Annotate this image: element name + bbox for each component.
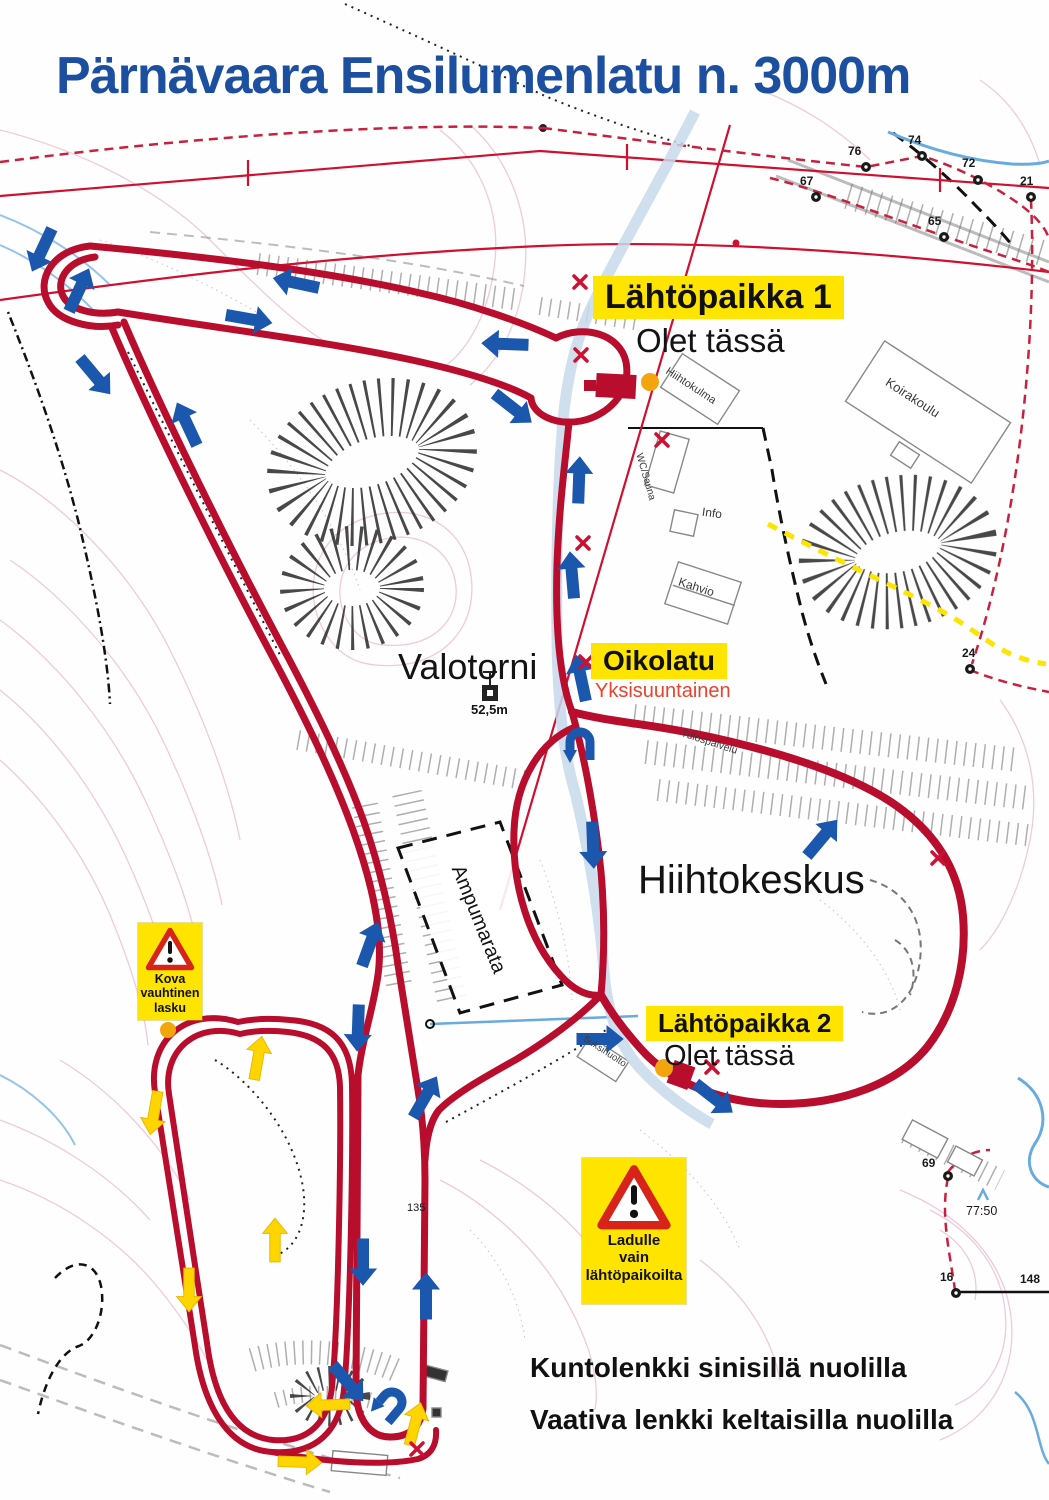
marker-148: 148 <box>1020 1272 1040 1286</box>
tower-height-label: 52,5m <box>471 702 508 717</box>
blue-uturn-arrow-icon <box>365 1383 406 1424</box>
blue-arrow-icon <box>565 457 593 504</box>
marker-67: 67 <box>800 174 813 188</box>
yellow-arrow-icon <box>242 1034 274 1081</box>
oikolatu-label: Oikolatu <box>591 643 727 679</box>
trail-map-page: Pärnävaara Ensilumenlatu n. 3000m Lähtöp… <box>0 0 1049 1500</box>
elevation-135-label: 135 <box>407 1202 425 1214</box>
start1-label: Lähtöpaikka 1 <box>593 276 844 319</box>
trail-map-graphics <box>0 0 1049 1500</box>
warning-downhill-line2: vauhtinen <box>140 986 199 1000</box>
legend-demanding-loop: Vaativa lenkki keltaisilla nuolilla <box>530 1404 953 1436</box>
building-small-1 <box>902 1120 948 1158</box>
start2-you-are-here: Olet tässä <box>664 1040 795 1073</box>
valotorni-label: Valotorni <box>398 646 537 688</box>
spot-height-chevron <box>978 1190 988 1200</box>
start2-label: Lähtöpaikka 2 <box>646 1006 843 1041</box>
blue-arrow-icon <box>797 812 846 864</box>
building-dark-2 <box>432 1408 441 1417</box>
power-lines <box>0 125 1049 910</box>
blue-arrow-icon <box>350 918 390 970</box>
marker-21: 21 <box>1020 174 1033 188</box>
marker-24: 24 <box>962 646 975 660</box>
yellow-arrow-icon <box>263 1218 288 1262</box>
blue-arrow-icon <box>413 1273 439 1319</box>
ski-slope-outlines <box>862 880 921 1014</box>
warning-access-line1: Ladulle <box>586 1232 683 1249</box>
marker-76: 76 <box>848 144 861 158</box>
blue-arrow-icon <box>70 350 119 402</box>
warning-sign-access: Ladulle vain lähtöpaikoilta <box>582 1158 686 1304</box>
start1-you-are-here: Olet tässä <box>636 322 785 360</box>
start-gate-1-tab <box>584 380 596 391</box>
warning-access-line3: lähtöpaikoilta <box>586 1267 683 1284</box>
warning-triangle-icon <box>596 1164 672 1232</box>
marker-72: 72 <box>962 156 975 170</box>
marker-16: 16 <box>940 1270 953 1284</box>
warning-access-line2: vain <box>586 1249 683 1266</box>
info-building-label: Info <box>701 505 723 522</box>
legend-fitness-loop: Kuntolenkki sinisillä nuolilla <box>530 1352 907 1384</box>
spot-height-label: 77:50 <box>966 1204 997 1218</box>
page-title: Pärnävaara Ensilumenlatu n. 3000m <box>56 46 910 106</box>
marker-74: 74 <box>908 133 921 147</box>
one-way-label: Yksisuuntainen <box>595 680 731 703</box>
warning-downhill-line1: Kova <box>140 972 199 986</box>
warning-sign-downhill: Kova vauhtinen lasku <box>138 923 202 1020</box>
blue-arrow-icon <box>482 330 529 358</box>
contour-lines <box>0 80 1040 1440</box>
hiihtokeskus-label: Hiihtokeskus <box>638 858 865 903</box>
warning-triangle-icon <box>145 927 195 972</box>
power-line-node <box>733 240 740 247</box>
building-small-2 <box>948 1146 983 1176</box>
marker-69: 69 <box>922 1156 935 1170</box>
marker-65: 65 <box>928 214 941 228</box>
building-dark-1 <box>424 1365 448 1381</box>
start-gate-1 <box>595 373 636 399</box>
warning-downhill-line3: lasku <box>140 1001 199 1015</box>
building-info <box>670 510 698 537</box>
